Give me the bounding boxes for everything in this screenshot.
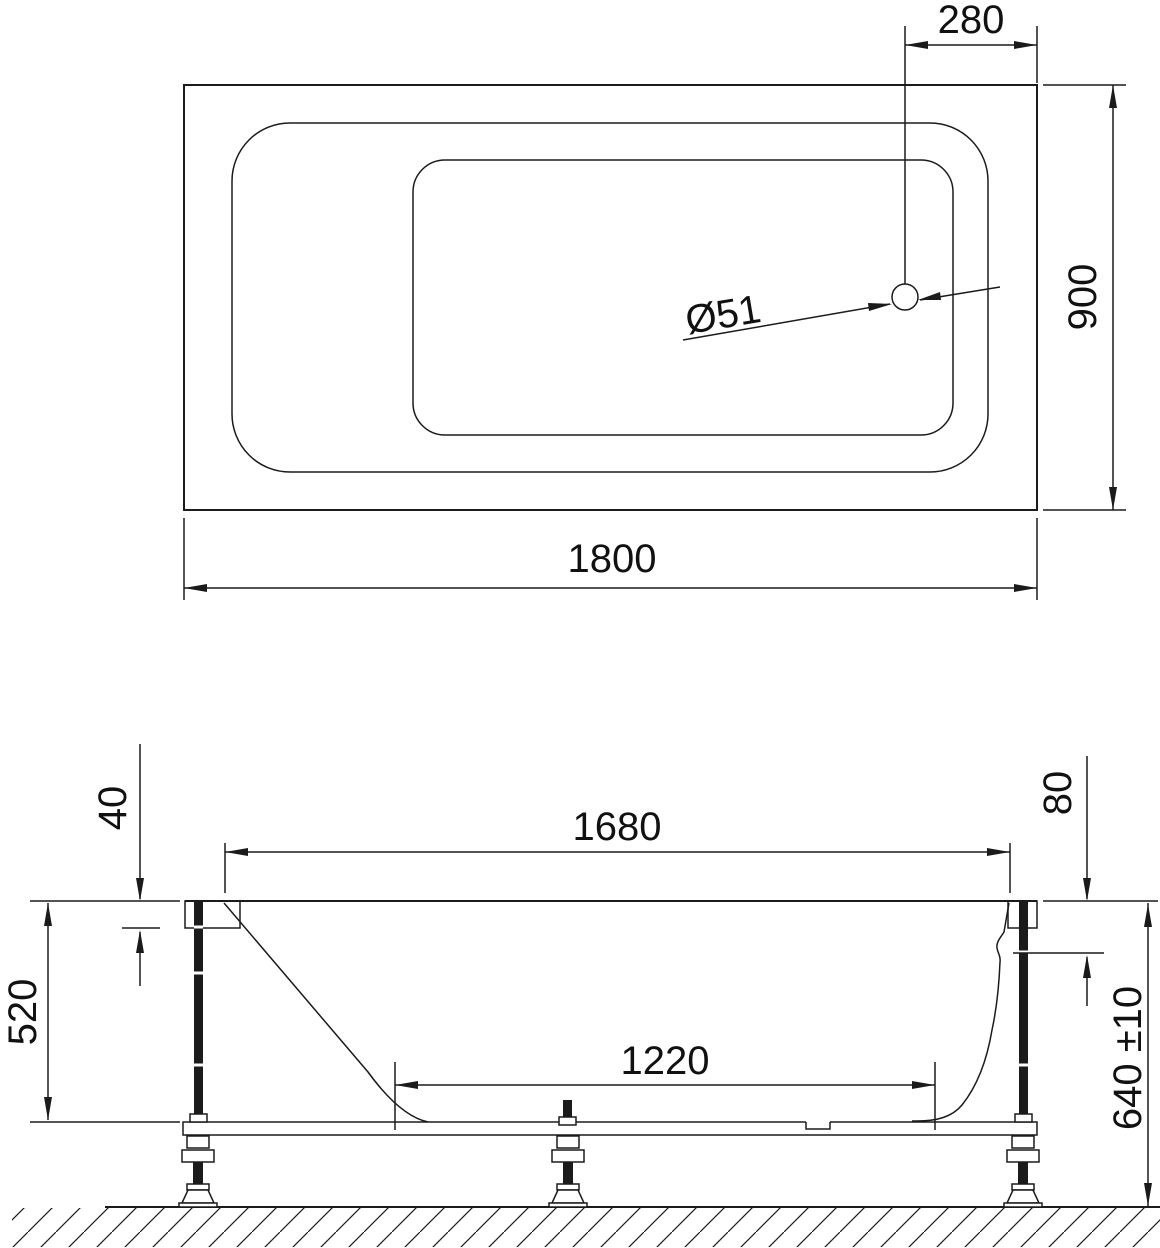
dimension-inner-top-length: 1680: [225, 805, 1010, 893]
side-view: 1680 1220 520 40: [1, 744, 1160, 1247]
arrowhead: [136, 930, 144, 953]
dimension-shell-height: 520: [1, 901, 180, 1122]
middle-foot-rod-top: [563, 1100, 572, 1118]
foot-cone: [182, 1190, 214, 1203]
foot-rod: [563, 1162, 573, 1184]
dimension-overall-height: 640 ±10: [1043, 901, 1158, 1206]
foot-nut: [1012, 1136, 1034, 1148]
arrowhead: [1014, 41, 1037, 49]
foot-flange: [1007, 1150, 1039, 1162]
drain-hole: [892, 284, 918, 310]
foot-nut: [187, 1136, 209, 1148]
tub-outer-edge: [184, 85, 1037, 510]
foot-nut: [557, 1136, 579, 1148]
foot-collar: [557, 1184, 579, 1190]
foot-flange: [552, 1150, 584, 1162]
arrowhead: [1109, 85, 1117, 108]
drain-diameter-label: Ø51: [682, 287, 764, 343]
rail-nut: [1015, 1114, 1032, 1122]
dimension-width: 900: [1043, 85, 1126, 510]
foot-cone: [552, 1190, 584, 1203]
foot-base: [549, 1203, 587, 1207]
foot-base: [179, 1203, 217, 1207]
foot-rod: [193, 1162, 203, 1184]
adjustable-foot-middle: [549, 1136, 587, 1207]
arrowhead: [225, 848, 248, 856]
arrowhead: [912, 1081, 935, 1089]
arrowhead: [1144, 904, 1152, 927]
arrowhead: [136, 878, 144, 901]
arrowhead: [1083, 878, 1091, 901]
rail-nut: [190, 1114, 207, 1122]
apron-depth-label: 80: [1036, 771, 1080, 816]
arrowhead: [1144, 1183, 1152, 1206]
arrowhead: [1109, 487, 1117, 510]
rim-lip-left: [185, 901, 240, 928]
foot-rod: [1018, 1162, 1028, 1184]
adjustable-foot-right: [1004, 1136, 1042, 1207]
floor-hatch: [12, 1208, 1160, 1247]
arrowhead: [1083, 955, 1091, 978]
foot-collar: [1012, 1184, 1034, 1190]
foot-collar: [187, 1184, 209, 1190]
tub-wall-left: [224, 903, 428, 1122]
width-label: 900: [1061, 264, 1105, 331]
dimension-rim-thickness: 40: [91, 744, 160, 986]
arrowhead: [44, 1097, 52, 1120]
frame-post-right: [1019, 901, 1028, 1114]
rail-nut: [559, 1117, 576, 1125]
foot-flange: [182, 1150, 214, 1162]
arrowhead: [1014, 584, 1037, 592]
top-view: Ø51 280 900 1800: [184, 0, 1126, 600]
technical-drawing-bathtub: Ø51 280 900 1800: [0, 0, 1160, 1248]
length-label: 1800: [568, 537, 657, 581]
tub-basin-bottom: [413, 160, 953, 435]
dimension-bottom-length: 1220: [395, 1039, 935, 1130]
arrowhead: [868, 303, 892, 311]
tub-wall-right: [912, 903, 1009, 1121]
inner-top-length-label: 1680: [573, 805, 662, 849]
adjustable-foot-left: [179, 1136, 217, 1207]
arrowhead: [44, 903, 52, 926]
arrowhead: [918, 292, 941, 300]
shell-height-label: 520: [1, 979, 45, 1046]
arrowhead: [905, 41, 928, 49]
drain-offset-label: 280: [938, 0, 1005, 42]
arrowhead: [184, 584, 207, 592]
tub-rim: [232, 123, 988, 472]
rim-thickness-label: 40: [91, 786, 135, 831]
bottom-length-label: 1220: [621, 1039, 710, 1083]
dimension-drain-offset: 280: [905, 0, 1037, 284]
foot-base: [1004, 1203, 1042, 1207]
arrowhead: [987, 848, 1010, 856]
foot-cone: [1007, 1190, 1039, 1203]
support-frame-rail: [183, 1122, 1037, 1135]
overall-height-label: 640 ±10: [1106, 986, 1150, 1130]
arrowhead: [395, 1081, 418, 1089]
dimension-length: 1800: [184, 518, 1037, 600]
drawing-canvas: Ø51 280 900 1800: [0, 0, 1160, 1248]
frame-post-left: [194, 901, 203, 1114]
